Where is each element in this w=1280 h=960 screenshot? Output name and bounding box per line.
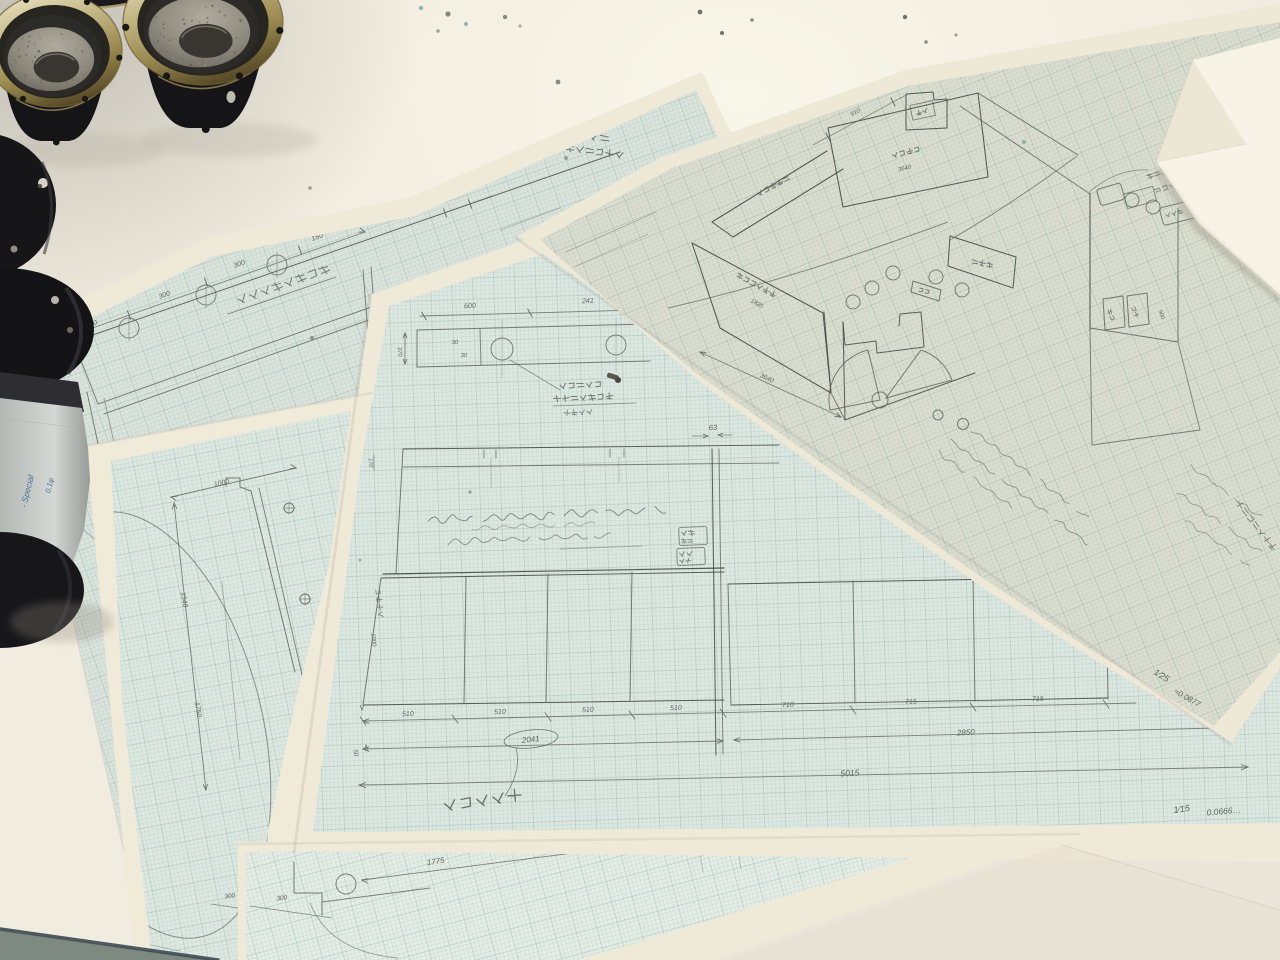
svg-text:710: 710	[782, 702, 794, 710]
svg-text:715: 715	[905, 699, 917, 707]
svg-text:2850: 2850	[956, 728, 976, 738]
svg-text:510: 510	[494, 709, 506, 717]
svg-text:510: 510	[582, 707, 594, 715]
svg-text:241: 241	[581, 298, 594, 305]
svg-text:300: 300	[276, 894, 288, 902]
svg-text:5015: 5015	[840, 768, 860, 779]
svg-text:510: 510	[402, 711, 414, 719]
svg-text:170: 170	[367, 458, 374, 469]
svg-text:715: 715	[1032, 696, 1044, 704]
svg-text:63: 63	[709, 423, 718, 432]
svg-text:370: 370	[396, 347, 403, 358]
svg-text:30: 30	[451, 340, 459, 346]
svg-text:30: 30	[460, 353, 468, 359]
svg-text:1000: 1000	[369, 633, 376, 647]
svg-text:510: 510	[670, 705, 682, 713]
svg-text:600: 600	[464, 303, 476, 310]
